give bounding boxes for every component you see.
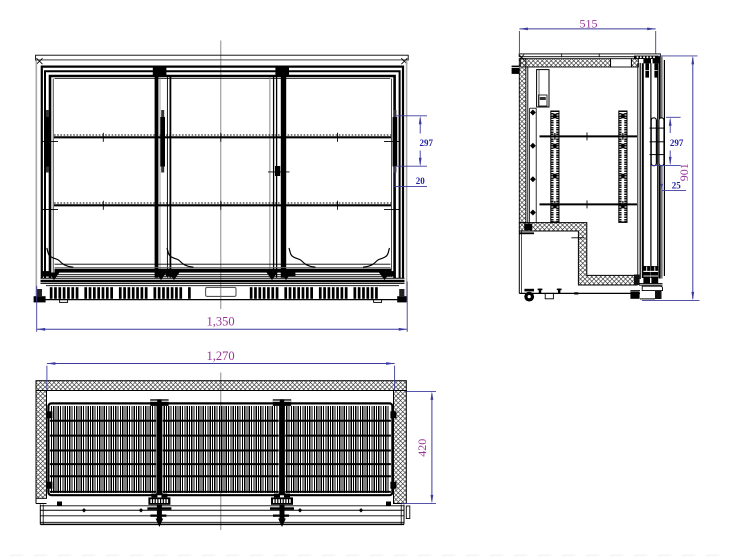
- svg-text:1,270: 1,270: [206, 349, 234, 363]
- svg-text:20: 20: [416, 176, 426, 186]
- svg-text:420: 420: [415, 439, 429, 457]
- svg-text:515: 515: [580, 17, 598, 31]
- svg-text:297: 297: [670, 138, 684, 148]
- svg-text:1,350: 1,350: [206, 315, 234, 329]
- svg-text:25: 25: [672, 181, 682, 191]
- svg-text:297: 297: [420, 138, 434, 148]
- svg-text:901: 901: [677, 163, 691, 181]
